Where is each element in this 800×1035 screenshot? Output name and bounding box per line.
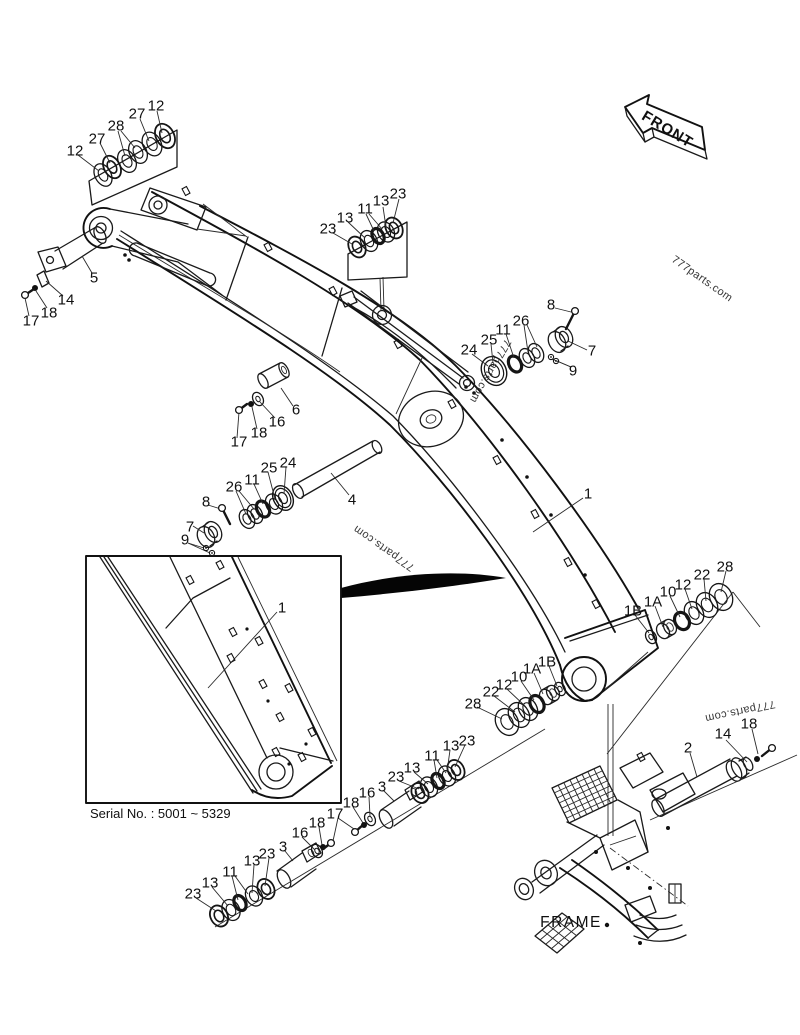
part-number-label: 23: [259, 847, 276, 862]
part-number-label: 11: [222, 865, 238, 880]
part-number-label: 16: [292, 826, 309, 841]
part-number-label: 22: [694, 568, 711, 583]
part-number-label: 12: [148, 99, 165, 114]
part-number-label: 23: [388, 770, 405, 785]
part-number-label: 28: [108, 119, 125, 134]
part-number-label: 11: [424, 749, 440, 764]
part-number-label: 8: [547, 298, 555, 313]
part-number-label: 14: [58, 293, 75, 308]
callout-layer: 1227282712231311132351418176161817826112…: [0, 0, 800, 1035]
part-number-label: 8: [202, 495, 210, 510]
part-number-label: 11: [244, 473, 260, 488]
part-number-label: 7: [588, 344, 596, 359]
part-number-label: 17: [327, 807, 344, 822]
part-number-label: 2: [684, 741, 692, 756]
part-number-label: 11: [495, 323, 511, 338]
part-number-label: 13: [443, 739, 460, 754]
part-number-label: 23: [185, 887, 202, 902]
part-number-label: 13: [244, 854, 261, 869]
part-number-label: 27: [129, 107, 146, 122]
part-number-label: 6: [292, 403, 300, 418]
part-number-label: 12: [67, 144, 84, 159]
part-number-label: 23: [390, 187, 407, 202]
part-number-label: 9: [569, 364, 577, 379]
part-number-label: 4: [348, 493, 356, 508]
part-number-label: 18: [309, 816, 326, 831]
part-number-label: 16: [359, 786, 376, 801]
part-number-label: 25: [261, 461, 278, 476]
part-number-label: 28: [465, 697, 482, 712]
part-number-label: 23: [320, 222, 337, 237]
part-number-label: 26: [226, 480, 243, 495]
part-number-label: 9: [181, 533, 189, 548]
part-number-label: 18: [741, 717, 758, 732]
part-number-label: 26: [513, 314, 530, 329]
part-number-label: 27: [89, 132, 106, 147]
part-number-label: 24: [461, 343, 478, 358]
part-number-label: 13: [337, 211, 354, 226]
part-number-label: 5: [90, 271, 98, 286]
part-number-label: 3: [378, 780, 386, 795]
part-number-label: 12: [675, 578, 692, 593]
part-number-label: 16: [269, 415, 286, 430]
part-number-label: 1: [584, 487, 592, 502]
part-number-label: 17: [231, 435, 248, 450]
part-number-label: 25: [481, 333, 498, 348]
part-number-label: 13: [373, 194, 390, 209]
part-number-label: 18: [343, 796, 360, 811]
part-number-label: 13: [404, 761, 421, 776]
part-number-label: 24: [280, 456, 297, 471]
part-number-label: 28: [717, 560, 734, 575]
part-number-label: 23: [459, 734, 476, 749]
part-number-label: 11: [357, 202, 373, 217]
part-number-label: 13: [202, 876, 219, 891]
part-number-label: 1B: [624, 604, 642, 619]
parts-diagram-page: FRONT FRAME Serial No. : 5001 ~ 5329 777…: [0, 0, 800, 1035]
part-number-label: 18: [251, 426, 268, 441]
part-number-label: 3: [279, 840, 287, 855]
part-number-label: 1: [278, 601, 286, 616]
part-number-label: 17: [23, 314, 40, 329]
part-number-label: 18: [41, 306, 58, 321]
part-number-label: 1B: [538, 655, 556, 670]
part-number-label: 14: [715, 727, 732, 742]
